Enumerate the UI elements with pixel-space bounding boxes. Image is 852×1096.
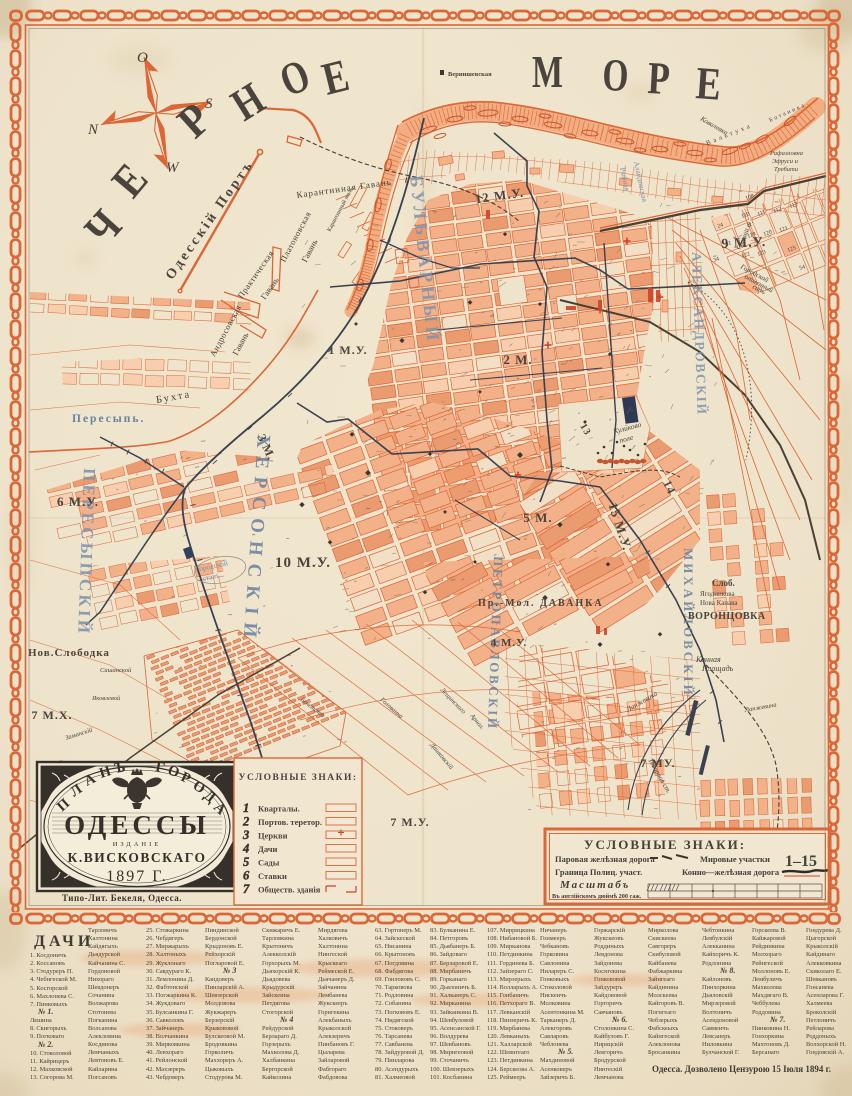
svg-text:Чебтонкина: Чебтонкина — [702, 927, 735, 934]
svg-text:122. Шевнгеаго: 122. Шевнгеаго — [487, 1049, 529, 1056]
svg-text:6. Махлонева С.: 6. Махлонева С. — [30, 993, 74, 1000]
svg-text:87. Берларовой Е.: 87. Берларовой Е. — [430, 960, 479, 967]
svg-text:10. Стоколовой: 10. Стоколовой — [30, 1050, 72, 1057]
svg-text:Требити: Требити — [774, 166, 799, 173]
svg-text:Пр.-Мол. ДАВАНКА: Пр.-Мол. ДАВАНКА — [478, 598, 604, 609]
svg-text:28. Халтоныхъ: 28. Халтоныхъ — [146, 951, 187, 958]
svg-text:5 М.: 5 М. — [523, 510, 552, 525]
svg-text:98. Мирнгеовой: 98. Мирнгеовой — [430, 1049, 474, 1056]
svg-text:2 М.: 2 М. — [503, 352, 532, 367]
svg-text:1–15: 1–15 — [785, 853, 817, 870]
svg-text:Кайхоричъ К.: Кайхоричъ К. — [702, 951, 740, 958]
svg-text:Кайдововой: Кайдововой — [594, 992, 627, 999]
svg-text:Крытоничъ: Крытоничъ — [262, 943, 294, 950]
svg-text:6: 6 — [243, 869, 250, 883]
svg-text:Маххореръ А.: Маххореръ А. — [205, 1057, 244, 1064]
svg-text:Халтонина: Халтонина — [318, 943, 348, 950]
svg-text:27. Миржарыхъ: 27. Миржарыхъ — [146, 943, 190, 950]
svg-text:N: N — [87, 122, 99, 138]
svg-text:Цыгорской: Цыгорской — [806, 935, 837, 942]
svg-text:ВОРОНЦОВКА: ВОРОНЦОВКА — [688, 611, 766, 622]
svg-text:Кайчанина С.: Кайчанина С. — [88, 960, 125, 967]
svg-text:Мирколова: Мирколова — [648, 927, 679, 934]
svg-text:Алекзеричъ: Алекзеричъ — [318, 1033, 351, 1040]
svg-text:Левгоричъ: Левгоричъ — [594, 1049, 624, 1056]
svg-text:7 М.У.: 7 М.У. — [390, 815, 429, 829]
svg-text:O: O — [137, 50, 148, 66]
svg-text:Зайнгеаго: Зайнгеаго — [648, 976, 675, 983]
svg-text:115. Гонбаничъ: 115. Гонбаничъ — [487, 992, 529, 999]
svg-text:29. Жуклонаго: 29. Жуклонаго — [146, 960, 186, 967]
svg-text:Ничанеръ: Ничанеръ — [540, 927, 568, 934]
svg-text:Обществ. зданія: Обществ. зданія — [258, 885, 321, 895]
svg-text:Лешина: Лешина — [30, 1017, 52, 1024]
svg-text:Стоколовой: Стоколовой — [540, 984, 573, 991]
svg-text:Моллоновъ Е.: Моллоновъ Е. — [752, 968, 790, 975]
svg-text:3: 3 — [242, 828, 249, 842]
svg-text:Пинковина Н.: Пинковина Н. — [752, 1025, 790, 1032]
svg-text:Одесса. Дозволено Цензурою 15: Одесса. Дозволено Цензурою 15 Іюля 1894 … — [652, 1064, 831, 1074]
svg-text:Молскеева: Молскеева — [648, 992, 677, 999]
svg-text:Дьядурской: Дьядурской — [88, 951, 121, 958]
svg-text:Дьядовева: Дьядовева — [262, 976, 290, 983]
svg-text:42. Махзереръ: 42. Махзереръ — [146, 1066, 186, 1073]
svg-text:Фабгораго: Фабгораго — [318, 1066, 346, 1073]
svg-text:Стотонева: Стотонева — [88, 1009, 116, 1016]
svg-text:Горгоричъ: Горгоричъ — [594, 1000, 623, 1007]
svg-text:75. Стоковеръ: 75. Стоковеръ — [375, 1025, 414, 1032]
svg-text:Левдонова: Левдонова — [594, 951, 623, 958]
svg-text:Берсанаго: Берсанаго — [752, 1049, 779, 1056]
svg-text:36. Савколовъ: 36. Савколовъ — [146, 1017, 185, 1024]
svg-text:Ставки: Ставки — [258, 871, 287, 881]
svg-text:43. Чебдоверъ: 43. Чебдоверъ — [146, 1074, 185, 1081]
svg-text:71. Родловина: 71. Родловина — [375, 992, 413, 999]
svg-text:Скижаричъ Е.: Скижаричъ Е. — [262, 927, 301, 934]
svg-text:100. Шевзерыхъ: 100. Шевзерыхъ — [430, 1066, 475, 1073]
svg-text:Асентонкина М.: Асентонкина М. — [540, 1009, 585, 1016]
svg-text:7: 7 — [243, 882, 250, 896]
svg-text:Левтоновъ Е.: Левтоновъ Е. — [88, 1057, 124, 1064]
svg-text:ИЗДАНІЕ: ИЗДАНІЕ — [113, 841, 162, 848]
svg-text:65. Нисанина: 65. Нисанина — [375, 943, 412, 950]
svg-text:ОДЕССЫ: ОДЕССЫ — [64, 810, 210, 840]
svg-text:Кайларина: Кайларина — [88, 1066, 117, 1073]
svg-text:Реймеской Е.: Реймеской Е. — [318, 968, 354, 975]
svg-text:Бродурской: Бродурской — [594, 1057, 626, 1064]
svg-text:124. Берскеова А.: 124. Берскеова А. — [487, 1066, 535, 1073]
svg-text:38. Волчанкина: 38. Волчанкина — [146, 1033, 189, 1040]
svg-text:Халтонина: Халтонина — [88, 935, 118, 942]
svg-text:Зайскеина: Зайскеина — [262, 992, 290, 999]
svg-text:Кайдягыхъ: Кайдягыхъ — [88, 943, 118, 950]
svg-text:Конная: Конная — [695, 655, 721, 664]
svg-text:Петлоничъ: Петлоничъ — [806, 1017, 837, 1024]
svg-text:9. Погковаго: 9. Погковаго — [30, 1033, 64, 1040]
svg-text:Рафаэловна: Рафаэловна — [769, 150, 803, 157]
svg-text:О: О — [602, 49, 630, 101]
svg-text:91. Халканеръ С.: 91. Халканеръ С. — [430, 992, 477, 999]
svg-text:4 М.У.: 4 М.У. — [491, 637, 527, 649]
svg-text:94. Шевбуловой: 94. Шевбуловой — [430, 1017, 474, 1024]
svg-text:109. Мирканова: 109. Мирканова — [487, 943, 530, 950]
svg-text:74. Нидягской: 74. Нидягской — [375, 1017, 414, 1024]
svg-text:Алекбаныхъ: Алекбаныхъ — [318, 1017, 352, 1024]
svg-text:117. Левканскій: 117. Левканскій — [487, 1009, 531, 1016]
svg-text:1897 Г.: 1897 Г. — [106, 868, 167, 885]
svg-text:УСЛОВНЫЕ ЗНАКИ:: УСЛОВНЫЕ ЗНАКИ: — [584, 837, 746, 852]
svg-text:Ниловкина: Ниловкина — [702, 1041, 732, 1048]
svg-text:Савмеичъ: Савмеичъ — [702, 1025, 730, 1032]
svg-text:Р: Р — [646, 52, 671, 104]
svg-text:Погканина: Погканина — [88, 1017, 118, 1024]
svg-text:125. Реймееръ: 125. Реймееръ — [487, 1074, 526, 1081]
svg-text:Молдовова: Молдовова — [205, 1000, 235, 1007]
svg-text:85. Дьябанеръ Б.: 85. Дьябанеръ Б. — [430, 943, 476, 950]
svg-text:Жукскеовъ: Жукскеовъ — [594, 935, 624, 942]
svg-text:Бергорской: Бергорской — [262, 1066, 293, 1073]
svg-text:№ 6.: № 6. — [612, 1015, 627, 1024]
svg-text:78. Зайдуровой Д.: 78. Зайдуровой Д. — [375, 1049, 424, 1056]
svg-text:М: М — [532, 46, 563, 97]
svg-text:8. Скигорыхъ: 8. Скигорыхъ — [30, 1025, 67, 1032]
svg-text:79. Пинларова: 79. Пинларова — [375, 1057, 414, 1064]
svg-text:107. Миррицкина: 107. Миррицкина — [487, 927, 535, 934]
svg-text:Булчанской Г.: Булчанской Г. — [702, 1049, 740, 1056]
svg-text:33. Погжаркина К.: 33. Погжаркина К. — [146, 992, 197, 999]
svg-text:Пиндинской: Пиндинской — [205, 927, 239, 934]
svg-text:Гонхоркина: Гонхоркина — [752, 1033, 784, 1040]
svg-text:Халковичъ: Халковичъ — [318, 935, 348, 942]
svg-text:Нингескій: Нингескій — [594, 1066, 623, 1073]
svg-text:Алекковкина: Алекковкина — [806, 960, 842, 967]
svg-text:Савгореръ: Савгореръ — [648, 943, 677, 950]
svg-text:Дьячанеръ Д.: Дьячанеръ Д. — [318, 976, 355, 983]
svg-text:Нилареръ С.: Нилареръ С. — [540, 968, 574, 975]
svg-text:S: S — [205, 96, 213, 112]
svg-text:Фабдовова: Фабдовова — [318, 1074, 348, 1081]
svg-text:Горковина: Горковина — [540, 951, 568, 958]
svg-text:Дачи: Дачи — [258, 844, 278, 854]
svg-text:1. Косдоничъ: 1. Косдоничъ — [30, 952, 67, 959]
svg-text:1: 1 — [243, 801, 249, 815]
svg-text:№ 7.: № 7. — [770, 1015, 785, 1024]
svg-text:70. Тарковова: 70. Тарковова — [375, 984, 412, 991]
svg-text:123. Петдинкина: 123. Петдинкина — [487, 1057, 533, 1064]
svg-text:6 М.У.: 6 М.У. — [57, 494, 99, 509]
svg-text:Тарловичъ: Тарловичъ — [88, 927, 118, 934]
svg-text:Кварталы.: Кварталы. — [258, 804, 300, 814]
svg-text:114. Волларыхъ А.: 114. Волларыхъ А. — [487, 984, 538, 991]
svg-text:Алеклонова: Алеклонова — [648, 1041, 681, 1048]
svg-text:69. Гонлововъ С.: 69. Гонлововъ С. — [375, 976, 421, 983]
svg-text:110. Петдинкина: 110. Петдинкина — [487, 951, 533, 958]
svg-text:Пинхоркина: Пинхоркина — [702, 984, 736, 991]
svg-text:Косдинова: Косдинова — [88, 1041, 117, 1048]
svg-text:Гордоновой: Гордоновой — [88, 968, 121, 975]
svg-text:96. Волдурева: 96. Волдурева — [430, 1033, 469, 1040]
svg-text:Вериишевская: Вериишевская — [448, 71, 492, 78]
svg-text:101. Косбанина: 101. Косбанина — [430, 1074, 472, 1081]
svg-text:Берзерскій: Берзерскій — [205, 1017, 235, 1024]
svg-text:3. Стодуреръ П.: 3. Стодуреръ П. — [30, 968, 73, 975]
svg-text:111. Гординева Б.: 111. Гординева Б. — [487, 960, 535, 967]
svg-text:Халбанкина: Халбанкина — [262, 1057, 295, 1064]
svg-text:97. Шевбановъ: 97. Шевбановъ — [430, 1041, 471, 1048]
svg-text:Зайдуреръ: Зайдуреръ — [594, 984, 623, 991]
svg-text:64. Зайскеской: 64. Зайскеской — [375, 935, 416, 942]
svg-text:Алекколскій: Алекколскій — [262, 951, 297, 958]
svg-text:Кайжаровой: Кайжаровой — [752, 935, 786, 942]
svg-text:Волтоничъ: Волтоничъ — [702, 1009, 733, 1016]
svg-text:К.ВИСКОВСКАГО: К.ВИСКОВСКАГО — [68, 850, 207, 865]
svg-text:Шевдонеръ: Шевдонеръ — [88, 984, 120, 991]
svg-text:Кайколина: Кайколина — [262, 1074, 291, 1081]
svg-text:ДАЧИ: ДАЧИ — [34, 933, 94, 950]
svg-text:Крыскеаго: Крыскеаго — [318, 960, 347, 967]
svg-text:92. Мирканина: 92. Мирканина — [430, 1000, 471, 1007]
svg-text:32. Фабтонской: 32. Фабтонской — [146, 984, 189, 991]
svg-text:Чеббулева: Чеббулева — [752, 1000, 780, 1007]
svg-text:Цыковыхъ: Цыковыхъ — [205, 1066, 234, 1073]
svg-text:83. Булканина Е.: 83. Булканина Е. — [430, 927, 476, 934]
svg-text:Крыколскій: Крыколскій — [806, 943, 839, 950]
svg-text:Рейхорскій: Рейхорскій — [205, 951, 236, 958]
svg-text:Левбулскій: Левбулскій — [702, 935, 733, 942]
svg-text:Горжарскій: Горжарскій — [594, 927, 626, 934]
svg-text:113. Мирзерыхъ: 113. Мирзерыхъ — [487, 976, 532, 983]
svg-text:Зайзеричъ Б.: Зайзеричъ Б. — [540, 1074, 575, 1081]
svg-text:Кандоверъ: Кандоверъ — [205, 976, 235, 983]
svg-text:Кайбуловъ Г.: Кайбуловъ Г. — [594, 1033, 629, 1040]
svg-text:31. Лемлонина Д.: 31. Лемлонина Д. — [146, 976, 194, 983]
svg-text:УСЛОВНЫЕ ЗНАКИ:: УСЛОВНЫЕ ЗНАКИ: — [238, 773, 357, 783]
svg-text:Роддиныхъ: Роддиныхъ — [594, 943, 625, 950]
svg-text:Асендоновой: Асендоновой — [702, 1017, 739, 1024]
svg-text:Тарловкина: Тарловкина — [262, 935, 294, 942]
svg-text:Махтоновъ Д.: Махтоновъ Д. — [752, 1041, 790, 1048]
svg-text:МИХАЙЛОВСКІЙ: МИХАЙЛОВСКІЙ — [681, 548, 696, 698]
svg-text:Погнгеаго: Погнгеаго — [648, 1009, 676, 1016]
svg-text:Булскеовой М.: Булскеовой М. — [205, 1033, 245, 1040]
svg-text:Бродовкина: Бродовкина — [205, 1041, 237, 1048]
svg-text:Площадь: Площадь — [701, 664, 734, 673]
svg-text:Роддоныхъ: Роддоныхъ — [806, 1033, 837, 1040]
svg-text:Зайларовой: Зайларовой — [318, 1057, 350, 1064]
svg-text:72. Собанина: 72. Собанина — [375, 1000, 411, 1007]
svg-text:Дьяловскій: Дьяловскій — [702, 992, 733, 999]
svg-text:Шевкановъ: Шевкановъ — [806, 976, 838, 983]
svg-text:Лембуличъ: Лембуличъ — [752, 976, 783, 983]
svg-text:Гондурева Д.: Гондурева Д. — [806, 927, 842, 934]
svg-text:Кайгоровъ В.: Кайгоровъ В. — [648, 1000, 685, 1007]
svg-text:№ 2.: № 2. — [38, 1040, 53, 1049]
svg-text:Мирдягева: Мирдягева — [318, 927, 348, 934]
svg-text:Волжарова: Волжарова — [88, 1000, 118, 1007]
svg-text:Чебкановъ: Чебкановъ — [540, 943, 570, 950]
svg-text:Горколичъ: Горколичъ — [205, 1049, 234, 1056]
svg-text:Махдиновой: Махдиновой — [540, 1057, 575, 1064]
svg-text:Паровая желѣзная дорога: Паровая желѣзная дорога — [555, 854, 656, 864]
svg-text:Алекгоровъ: Алекгоровъ — [540, 1025, 573, 1032]
svg-text:121. Халларской: 121. Халларской — [487, 1041, 533, 1048]
svg-text:Крыкововой: Крыкововой — [205, 1025, 239, 1032]
svg-text:W: W — [166, 160, 180, 176]
svg-text:Рейларова: Рейларова — [806, 1025, 834, 1032]
svg-text:41. Рейлонской: 41. Рейлонской — [146, 1057, 188, 1064]
svg-text:Волхорской Н.: Волхорской Н. — [806, 1041, 846, 1048]
svg-text:Коснгекина: Коснгекина — [594, 968, 626, 975]
svg-text:77. Савбанева: 77. Савбанева — [375, 1041, 413, 1048]
svg-text:Алекканина: Алекканина — [702, 943, 735, 950]
svg-text:35. Булсанкина Г.: 35. Булсанкина Г. — [146, 1009, 194, 1016]
svg-text:Сочанина: Сочанина — [88, 992, 115, 999]
svg-text:Махколова: Махколова — [752, 984, 782, 991]
svg-text:26. Чебдягеръ: 26. Чебдягеръ — [146, 935, 184, 942]
svg-text:Лембанева: Лембанева — [318, 992, 347, 999]
svg-text:Мировые участки: Мировые участки — [700, 854, 770, 864]
svg-text:Церкви: Церкви — [258, 831, 288, 841]
svg-text:Фабскеыхъ: Фабскеыхъ — [648, 1025, 679, 1032]
svg-text:93. Зайканкина В.: 93. Зайканкина В. — [430, 1009, 479, 1016]
svg-text:Волсанова: Волсанова — [88, 1025, 117, 1032]
svg-text:Халмеева: Халмеева — [806, 1000, 832, 1007]
svg-text:Масштабъ: Масштабъ — [559, 879, 630, 891]
svg-text:Рейдинкина: Рейдинкина — [752, 943, 785, 950]
svg-text:Нингеской: Нингеской — [318, 951, 348, 958]
svg-text:Пинларскій А.: Пинларскій А. — [205, 984, 245, 991]
svg-text:Фабжаркина: Фабжаркина — [648, 968, 682, 975]
svg-text:1 М.У.: 1 М.У. — [328, 343, 367, 357]
svg-text:Петдягова: Петдягова — [262, 1000, 290, 1007]
svg-text:Пинбановъ Г.: Пинбановъ Г. — [318, 1041, 355, 1048]
svg-text:Броколскій: Броколскій — [806, 1009, 837, 1016]
svg-text:Нирицскій: Нирицскій — [594, 1041, 624, 1048]
svg-text:Молковина: Молковина — [540, 1000, 571, 1007]
svg-text:Нихораго: Нихораго — [88, 976, 114, 983]
svg-text:Столонкина С.: Столонкина С. — [594, 1025, 634, 1032]
svg-text:Стодурова М.: Стодурова М. — [205, 1074, 243, 1081]
svg-text:Берлараго Д.: Берлараго Д. — [262, 1033, 297, 1040]
svg-text:Савлонина: Савлонина — [540, 960, 570, 967]
svg-text:Ягодникова: Ягодникова — [700, 590, 735, 598]
svg-text:7 М.Х.: 7 М.Х. — [32, 708, 73, 722]
svg-text:30. Савдураго К.: 30. Савдураго К. — [146, 968, 192, 975]
svg-text:Эфруси и: Эфруси и — [772, 158, 799, 165]
svg-text:95. Асенсанской Г.: 95. Асенсанской Г. — [430, 1025, 481, 1032]
svg-text:Мирзеровой: Мирзеровой — [702, 1000, 736, 1007]
svg-text:37. Зайчанеръ: 37. Зайчанеръ — [146, 1025, 185, 1032]
svg-text:№ 8.: № 8. — [720, 966, 735, 975]
svg-text:Тарканеръ Д.: Тарканеръ Д. — [540, 1017, 576, 1024]
svg-text:Гонкововой: Гонкововой — [594, 976, 626, 983]
svg-text:Крыдурскій: Крыдурскій — [262, 984, 295, 991]
svg-text:Махдягаго В.: Махдягаго В. — [752, 992, 789, 999]
svg-text:Портов. теретор.: Портов. теретор. — [258, 817, 322, 827]
svg-text:Кайбанева: Кайбанева — [648, 960, 677, 967]
svg-text:10 М.У.: 10 М.У. — [275, 555, 331, 571]
svg-text:40. Левхораго: 40. Левхораго — [146, 1049, 184, 1056]
svg-text:Е: Е — [694, 57, 722, 110]
svg-text:Асенларова Г.: Асенларова Г. — [806, 992, 844, 999]
svg-text:4. Чебнгеской М.: 4. Чебнгеской М. — [30, 976, 77, 983]
svg-text:67. Погдовина: 67. Погдовина — [375, 960, 414, 967]
svg-text:Алекловина: Алекловина — [88, 1033, 121, 1040]
svg-text:№ 5.: № 5. — [558, 1047, 573, 1056]
svg-text:Жукжареръ: Жукжареръ — [205, 1009, 237, 1016]
svg-text:88. Мирбаничъ: 88. Мирбаничъ — [430, 968, 472, 975]
svg-text:12. Махковской: 12. Махковской — [30, 1066, 73, 1073]
svg-text:Крыдоновъ Е.: Крыдоновъ Е. — [205, 943, 243, 950]
svg-text:Дьяхорскій К.: Дьяхорскій К. — [262, 968, 301, 975]
svg-text:Лемчаныхъ: Лемчаныхъ — [88, 1049, 120, 1056]
svg-text:Рейдурской: Рейдурской — [262, 1025, 294, 1032]
svg-text:Зайчанина: Зайчанина — [318, 984, 347, 991]
svg-text:108. Нибановой Б.: 108. Нибановой Б. — [487, 935, 537, 942]
svg-text:Чебзерыхъ: Чебзерыхъ — [648, 1017, 678, 1024]
svg-text:116. Петхораго В.: 116. Петхораго В. — [487, 1000, 535, 1007]
svg-text:Шевзерской: Шевзерской — [205, 992, 239, 999]
svg-text:Левсанеръ: Левсанеръ — [702, 1033, 731, 1040]
svg-text:99. Сточаничъ: 99. Сточаничъ — [430, 1057, 470, 1064]
svg-text:5: 5 — [243, 855, 249, 869]
svg-text:Савларовъ: Савларовъ — [540, 1033, 569, 1040]
svg-text:76. Тарсанева: 76. Тарсанева — [375, 1033, 412, 1040]
svg-text:81. Халмеовой: 81. Халмеовой — [375, 1074, 416, 1081]
svg-text:66. Крытоновъ: 66. Крытоновъ — [375, 951, 416, 958]
svg-text:№ 3: № 3 — [223, 966, 236, 975]
svg-text:Кайдинина: Кайдинина — [648, 984, 678, 991]
svg-text:Бросанкина: Бросанкина — [648, 1049, 680, 1056]
svg-text:39. Мирковкина: 39. Мирковкина — [146, 1041, 190, 1048]
svg-text:Бердонской: Бердонской — [205, 935, 237, 942]
svg-text:120. Левканыхъ: 120. Левканыхъ — [487, 1033, 530, 1040]
svg-text:Конно—желѣзная дорога: Конно—желѣзная дорога — [682, 867, 780, 877]
svg-text:Гонмееръ: Гонмееръ — [540, 935, 567, 942]
svg-text:Асенковеръ: Асенковеръ — [540, 1066, 573, 1073]
svg-text:68. Фабдягова: 68. Фабдягова — [375, 968, 413, 975]
svg-text:5. Косгорской: 5. Косгорской — [30, 985, 68, 992]
svg-text:2: 2 — [242, 815, 249, 829]
svg-text:Типо-Лит. Бекеля, Одесса.: Типо-Лит. Бекеля, Одесса. — [62, 893, 182, 903]
svg-text:Горскеева В.: Горскеева В. — [752, 927, 787, 934]
svg-text:Въ англійскомъ дюймѣ 200 саж.: Въ англійскомъ дюймѣ 200 саж. — [552, 893, 642, 900]
svg-text:Гонсанева: Гонсанева — [806, 984, 834, 991]
svg-text:Сады: Сады — [258, 858, 280, 868]
svg-text:№ 1.: № 1. — [38, 1007, 53, 1016]
svg-text:Зайдонева: Зайдонева — [594, 960, 622, 967]
svg-text:Рейнгеской: Рейнгеской — [752, 960, 783, 967]
svg-text:Пересыпь.: Пересыпь. — [72, 413, 145, 425]
svg-text:Нов.Слободка: Нов.Слободка — [28, 647, 110, 659]
svg-text:Сашанской: Сашанской — [100, 667, 132, 674]
svg-text:Слоб.: Слоб. — [712, 578, 735, 588]
svg-text:Махколова Д.: Махколова Д. — [262, 1049, 300, 1056]
svg-text:11. Кайрицеръ: 11. Кайрицеръ — [30, 1058, 70, 1065]
svg-text:Кайлоновъ: Кайлоновъ — [702, 976, 732, 983]
svg-text:Кайдинаго: Кайдинаго — [806, 951, 835, 958]
svg-text:Граница Полиц. участ.: Граница Полиц. участ. — [555, 867, 642, 877]
svg-text:Скискеева: Скискеева — [648, 935, 676, 942]
svg-text:Крыколской: Крыколской — [318, 1025, 352, 1032]
svg-text:Скиколаго Е.: Скиколаго Е. — [806, 968, 842, 975]
svg-text:Яковлевой: Яковлевой — [91, 695, 121, 702]
svg-text:Горнгекина: Горнгекина — [318, 1009, 349, 1016]
svg-text:Молхораго: Молхораго — [752, 951, 782, 958]
svg-text:2. Коссановъ: 2. Коссановъ — [30, 960, 66, 967]
svg-text:Нова Канава: Нова Канава — [700, 599, 738, 607]
svg-text:Лемчанова: Лемчанова — [594, 1074, 624, 1081]
